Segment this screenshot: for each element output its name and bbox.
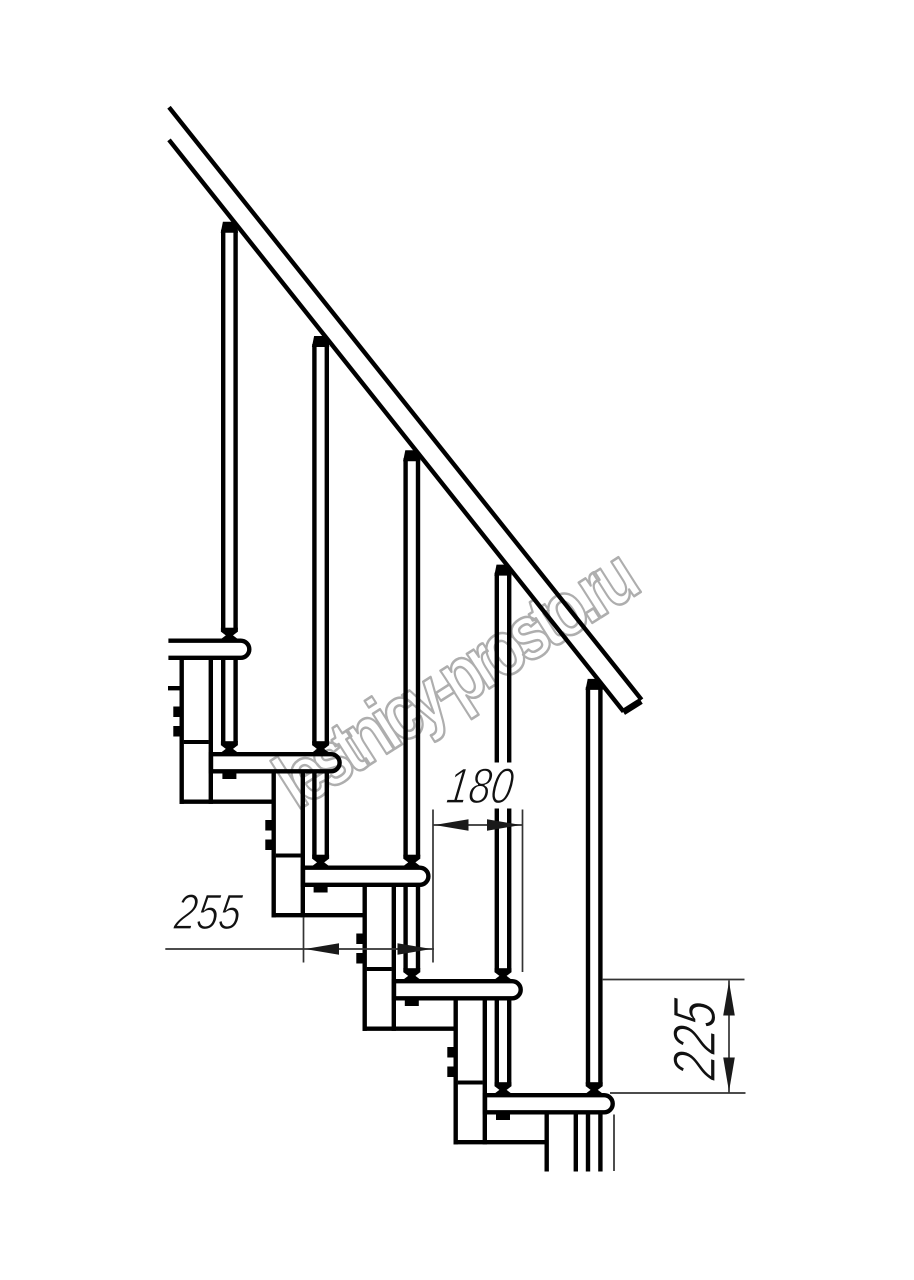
svg-text:225: 225	[662, 995, 728, 1084]
svg-text:255: 255	[171, 884, 246, 940]
svg-text:180: 180	[443, 758, 517, 814]
